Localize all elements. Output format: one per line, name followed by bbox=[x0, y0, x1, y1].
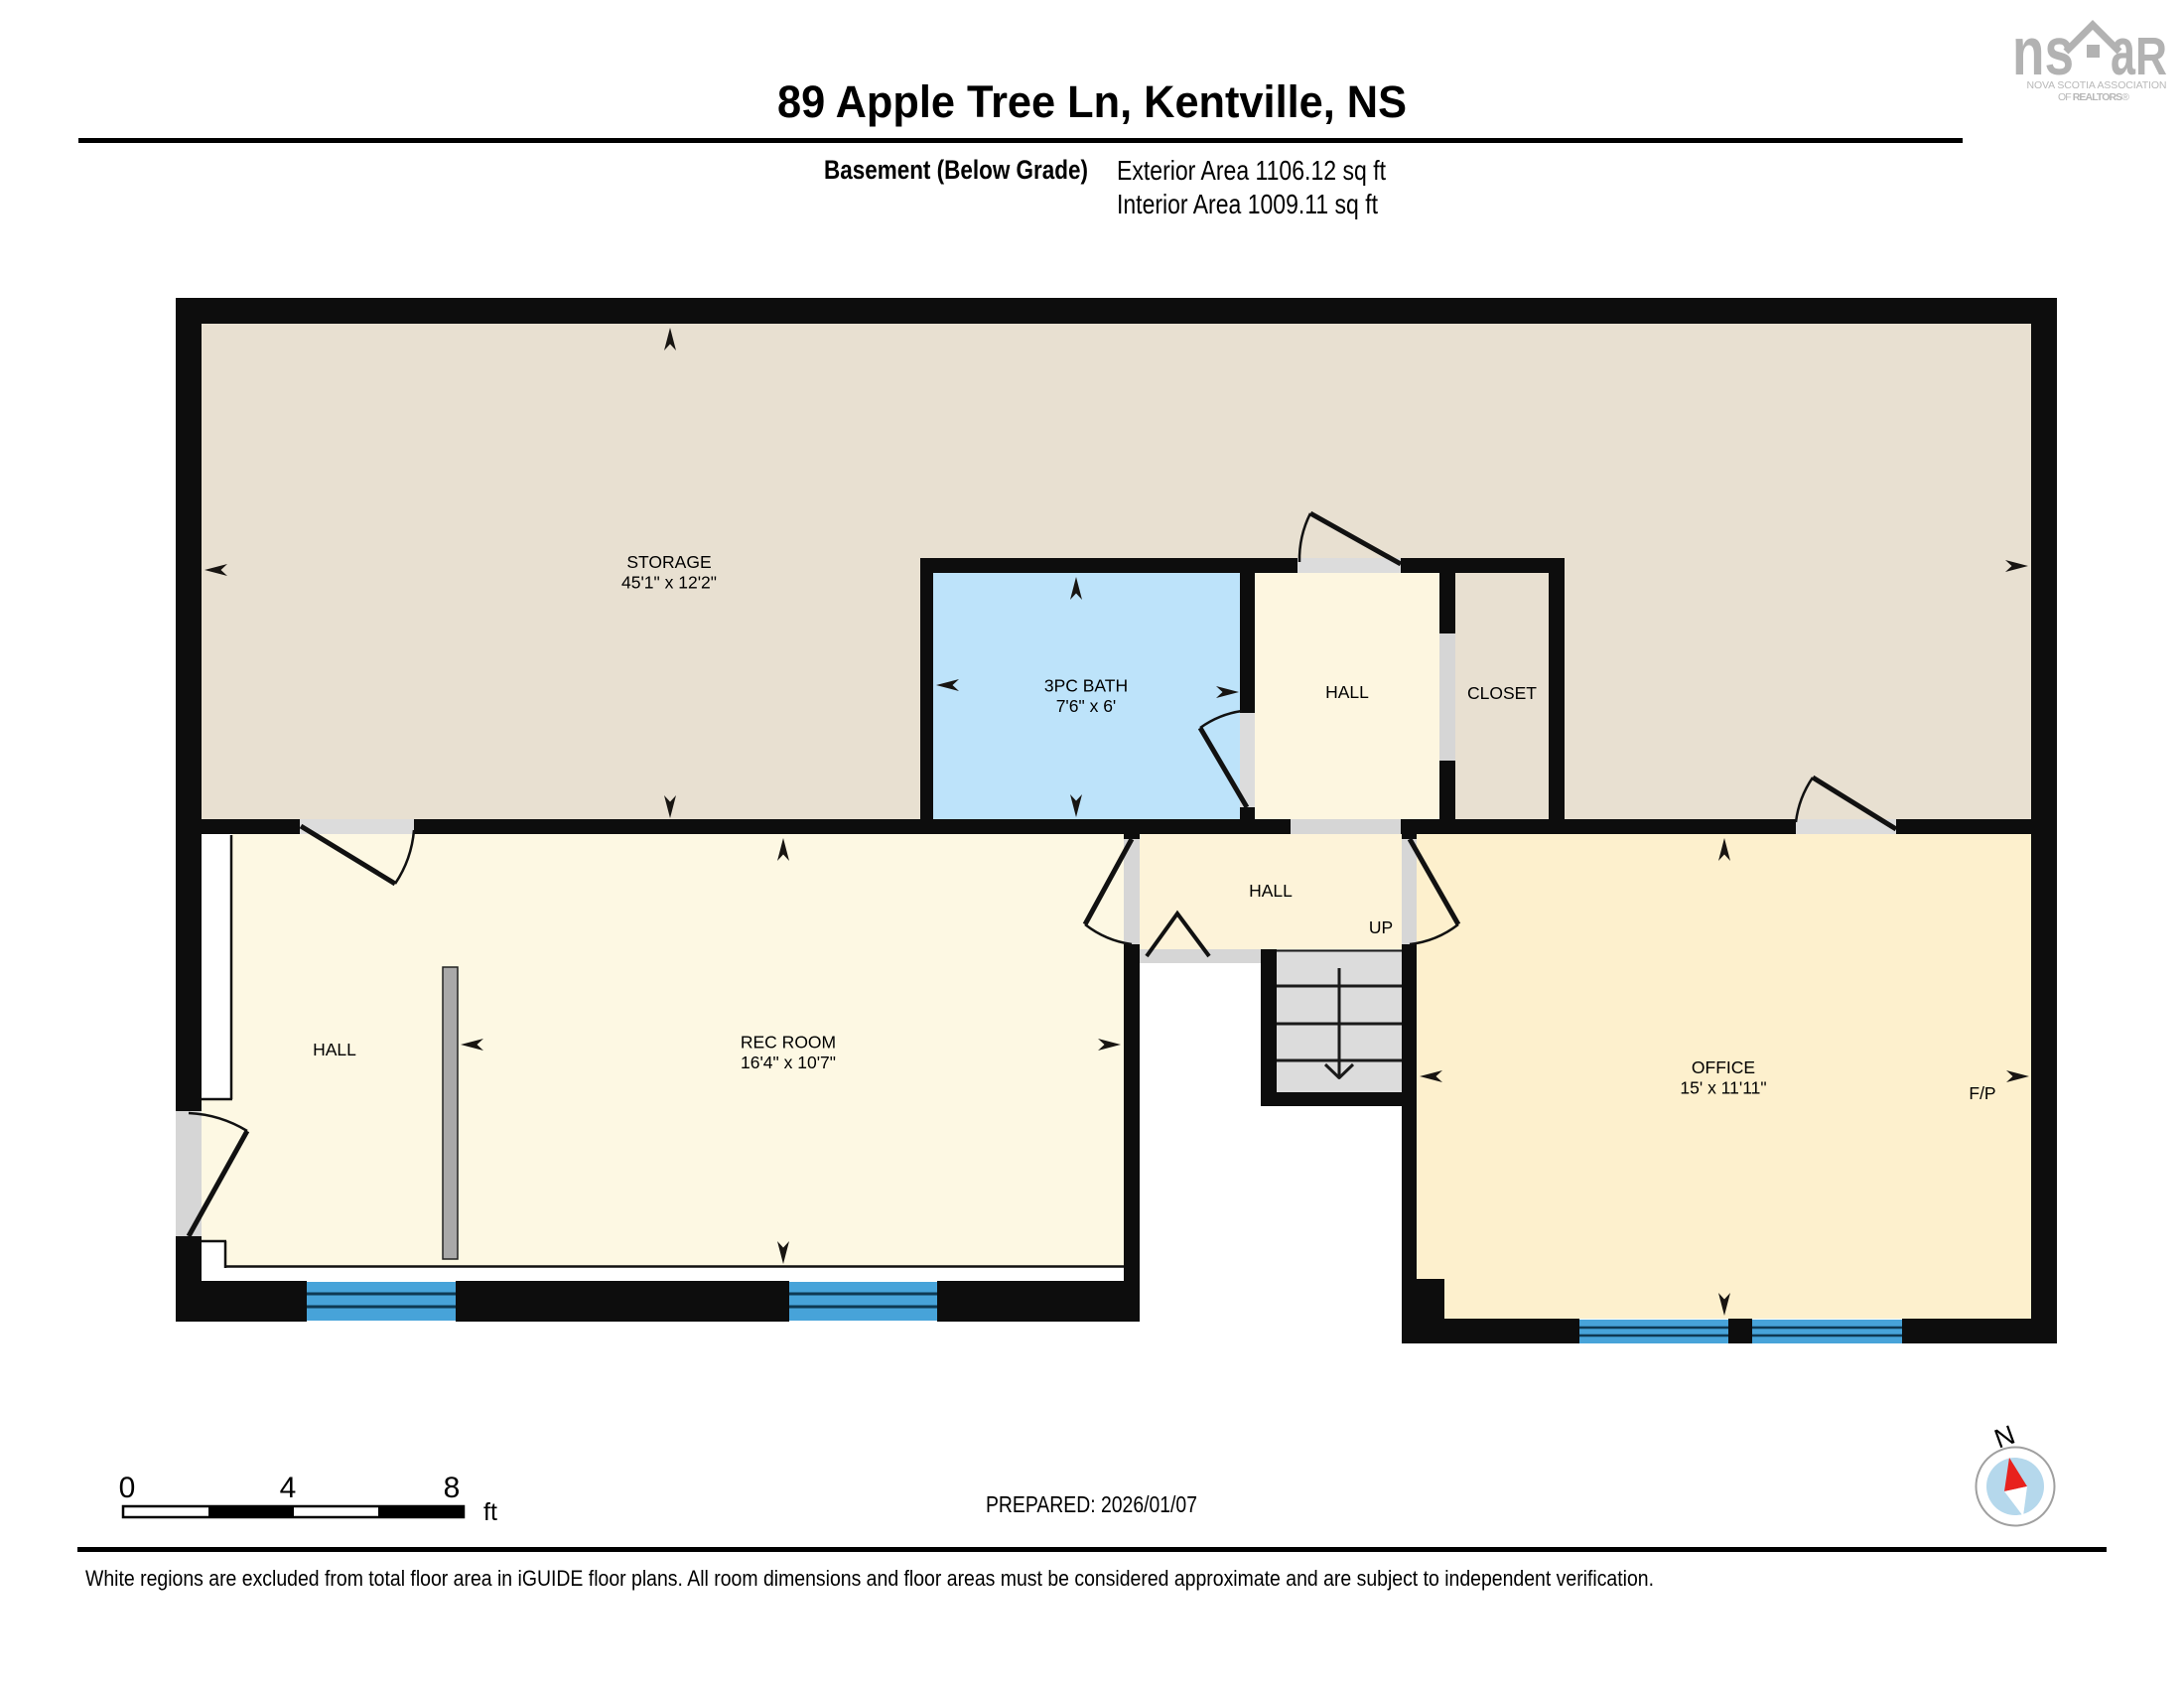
svg-text:OFFICE: OFFICE bbox=[1692, 1057, 1755, 1077]
svg-text:STORAGE: STORAGE bbox=[626, 552, 711, 572]
svg-text:4: 4 bbox=[280, 1472, 297, 1504]
svg-text:REC ROOM: REC ROOM bbox=[741, 1033, 836, 1053]
svg-text:HALL: HALL bbox=[1325, 682, 1369, 702]
svg-text:a: a bbox=[2111, 14, 2136, 89]
svg-text:15' x 11'11": 15' x 11'11" bbox=[1680, 1078, 1766, 1098]
svg-text:Interior Area 1009.11 sq ft: Interior Area 1009.11 sq ft bbox=[1117, 189, 1378, 219]
svg-text:PREPARED: 2026/01/07: PREPARED: 2026/01/07 bbox=[986, 1491, 1197, 1517]
svg-text:ft: ft bbox=[483, 1498, 497, 1526]
svg-text:89 Apple Tree Ln, Kentville, N: 89 Apple Tree Ln, Kentville, NS bbox=[777, 76, 1407, 127]
svg-text:F/P: F/P bbox=[1969, 1083, 1995, 1103]
svg-text:Basement (Below Grade): Basement (Below Grade) bbox=[824, 155, 1088, 185]
svg-text:R: R bbox=[2135, 27, 2167, 86]
svg-text:CLOSET: CLOSET bbox=[1467, 683, 1537, 703]
svg-text:NOVA SCOTIA ASSOCIATION: NOVA SCOTIA ASSOCIATION bbox=[2027, 79, 2167, 91]
svg-text:16'4" x 10'7": 16'4" x 10'7" bbox=[741, 1053, 836, 1072]
svg-text:OF REALTORS®: OF REALTORS® bbox=[2058, 91, 2129, 103]
svg-text:0: 0 bbox=[119, 1472, 136, 1504]
svg-text:Exterior Area 1106.12 sq ft: Exterior Area 1106.12 sq ft bbox=[1117, 155, 1386, 186]
svg-text:White regions are excluded fro: White regions are excluded from total fl… bbox=[85, 1566, 1654, 1591]
svg-text:45'1" x 12'2": 45'1" x 12'2" bbox=[621, 573, 717, 593]
svg-text:UP: UP bbox=[1369, 917, 1393, 937]
svg-text:8: 8 bbox=[444, 1472, 461, 1504]
svg-text:HALL: HALL bbox=[1249, 881, 1293, 901]
svg-text:ns: ns bbox=[2012, 14, 2074, 89]
svg-text:3PC BATH: 3PC BATH bbox=[1044, 676, 1128, 696]
svg-text:7'6" x 6': 7'6" x 6' bbox=[1056, 696, 1117, 716]
svg-text:HALL: HALL bbox=[313, 1040, 356, 1059]
